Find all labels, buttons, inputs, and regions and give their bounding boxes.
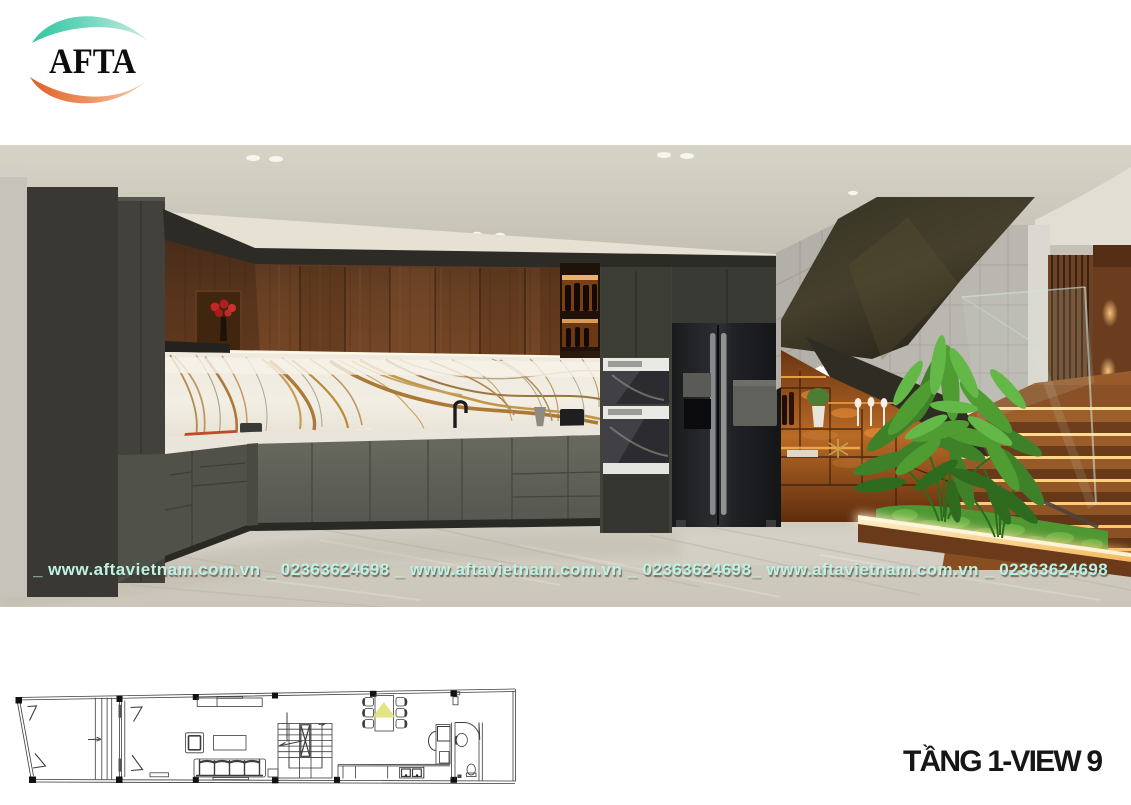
svg-text:AFTA: AFTA — [49, 41, 136, 81]
